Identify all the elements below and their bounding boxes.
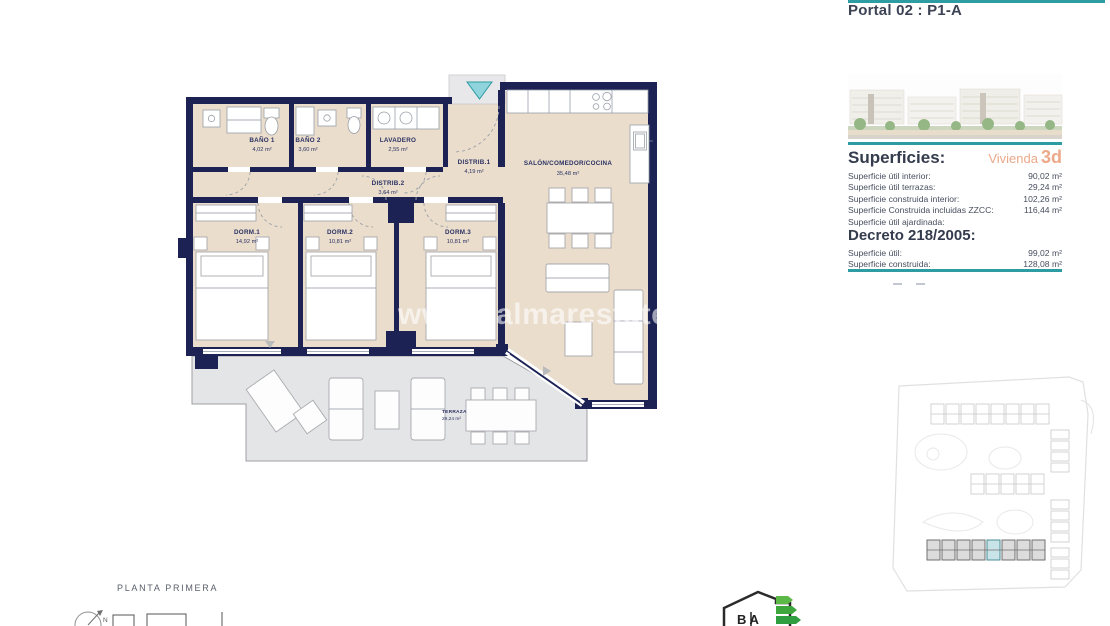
room-area-distrib2: 3,64 m²	[378, 190, 397, 196]
row-label: Superficie construida interior:	[848, 194, 959, 205]
row-label: Superficie útil terrazas:	[848, 182, 935, 193]
room-label-banio1: BAÑO 1	[249, 135, 275, 144]
divider-bottom	[848, 269, 1062, 272]
legend	[113, 612, 222, 626]
plan-caption: PLANTA PRIMERA	[117, 583, 218, 593]
site-plan-bottom-right-stack	[1051, 548, 1069, 579]
room-label-dorm2: DORM.2	[327, 229, 353, 236]
vivienda-label: Vivienda	[988, 151, 1038, 166]
room-label-banio2: BAÑO 2	[295, 135, 321, 144]
compass-icon: N	[75, 610, 108, 626]
superficies-heading: Superficies:	[848, 148, 945, 168]
room-label-salon: SALÓN/COMEDOR/COCINA	[524, 158, 612, 167]
superficies-table: Superficie útil interior: 90,02 m² Super…	[848, 171, 1062, 228]
table-row: Superficie útil: 99,02 m²	[848, 248, 1062, 259]
room-area-dorm3: 10,81 m²	[447, 239, 470, 245]
room-label-distrib2: DISTRIB.2	[372, 180, 405, 187]
table-row: Superficie construida interior: 102,26 m…	[848, 194, 1062, 205]
site-plan	[893, 377, 1093, 591]
room-area-salon: 35,48 m²	[557, 171, 580, 177]
room-label-distrib1: DISTRIB.1	[458, 159, 491, 166]
row-value: 29,24 m²	[1028, 182, 1062, 193]
room-label-dorm3: DORM.3	[445, 229, 471, 236]
row-value: 90,02 m²	[1028, 171, 1062, 182]
decreto-table: Superficie útil: 99,02 m² Superficie con…	[848, 248, 1062, 271]
room-area-banio2: 3,60 m²	[298, 147, 317, 153]
room-label-lavadero: LAVADERO	[380, 137, 416, 144]
page-title: Portal 02 : P1-A	[848, 2, 962, 19]
row-label: Superficie útil interior:	[848, 171, 931, 182]
table-row: Superficie útil terrazas: 29,24 m²	[848, 182, 1062, 193]
room-label-terraza: TERRAZA	[442, 409, 467, 415]
room-area-banio1: 4,02 m²	[252, 147, 271, 153]
table-row: Superficie Construida incluidas ZZCC: 11…	[848, 205, 1062, 216]
decreto-heading: Decreto 218/2005:	[848, 227, 976, 244]
watermark: www.palmarestate.com	[398, 298, 713, 332]
superficies-header: Superficies: Vivienda3d	[848, 147, 1062, 168]
row-value: 116,44 m²	[1024, 205, 1062, 216]
site-plan-right-stack-a	[1051, 430, 1069, 472]
room-label-dorm1: DORM.1	[234, 229, 260, 236]
site-plan-right-stack-b	[1051, 500, 1069, 542]
room-area-dorm2: 10,81 m²	[329, 239, 352, 245]
row-label: Superficie útil:	[848, 248, 902, 259]
energy-logo-label: B A	[737, 612, 760, 626]
row-label: Superficie Construida incluidas ZZCC:	[848, 205, 994, 216]
site-plan-top-row	[931, 404, 1049, 424]
room-area-terraza: 29,24 m²	[442, 416, 461, 422]
row-value: 102,26 m²	[1023, 194, 1062, 205]
cutoff-text-fragment	[893, 280, 1023, 285]
site-plan-highlighted-row	[927, 540, 1045, 560]
row-value: 99,02 m²	[1028, 248, 1062, 259]
room-area-dorm1: 14,92 m²	[236, 239, 259, 245]
building-photo	[848, 74, 1062, 139]
room-area-lavadero: 2,55 m²	[388, 147, 407, 153]
room-area-distrib1: 4,19 m²	[464, 169, 483, 175]
vivienda-badge: Vivienda3d	[988, 147, 1062, 168]
site-plan-middle-row	[971, 474, 1044, 494]
floorplan-sheet: BAÑO 1 4,02 m² BAÑO 2 3,60 m² LAVADERO 2…	[0, 0, 1110, 626]
compass-north-label: N	[103, 617, 108, 624]
vivienda-number: 3d	[1041, 147, 1062, 167]
divider-top	[848, 142, 1062, 145]
table-row: Superficie útil interior: 90,02 m²	[848, 171, 1062, 182]
energy-rating-logo-icon: B A	[724, 592, 801, 626]
